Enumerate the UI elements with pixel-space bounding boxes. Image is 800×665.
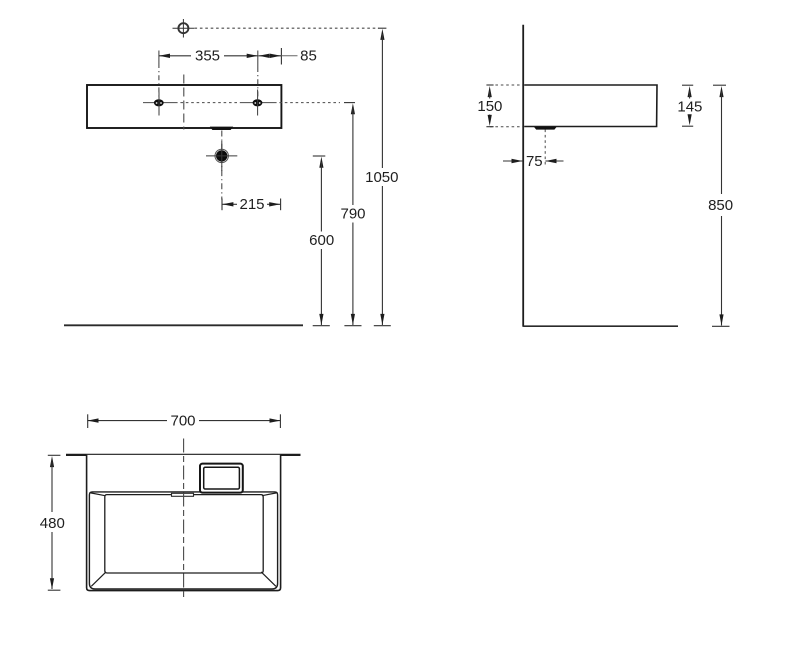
svg-text:145: 145	[677, 98, 702, 115]
svg-text:85: 85	[300, 48, 317, 65]
svg-text:355: 355	[195, 48, 220, 65]
svg-text:600: 600	[309, 232, 334, 249]
svg-text:480: 480	[40, 515, 65, 532]
svg-text:850: 850	[708, 197, 733, 214]
svg-text:1050: 1050	[365, 169, 398, 186]
svg-text:150: 150	[477, 98, 502, 115]
svg-text:215: 215	[239, 196, 264, 213]
svg-text:700: 700	[170, 412, 195, 429]
svg-text:75: 75	[526, 153, 543, 170]
svg-text:790: 790	[340, 206, 365, 223]
